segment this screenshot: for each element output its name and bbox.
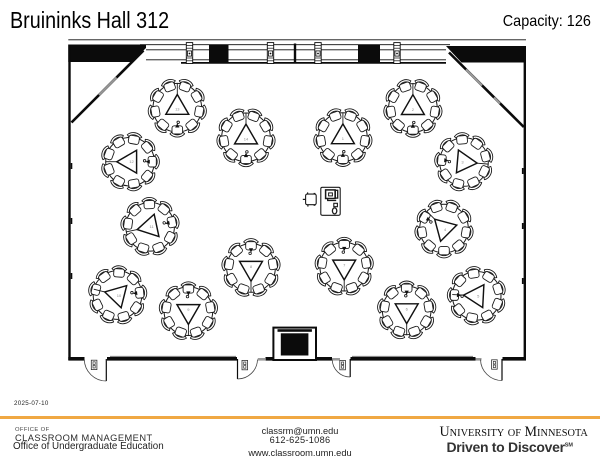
svg-text:10: 10 <box>117 293 122 298</box>
svg-text:13: 13 <box>175 107 180 112</box>
svg-text:12: 12 <box>129 159 134 164</box>
svg-text:14: 14 <box>244 136 249 141</box>
